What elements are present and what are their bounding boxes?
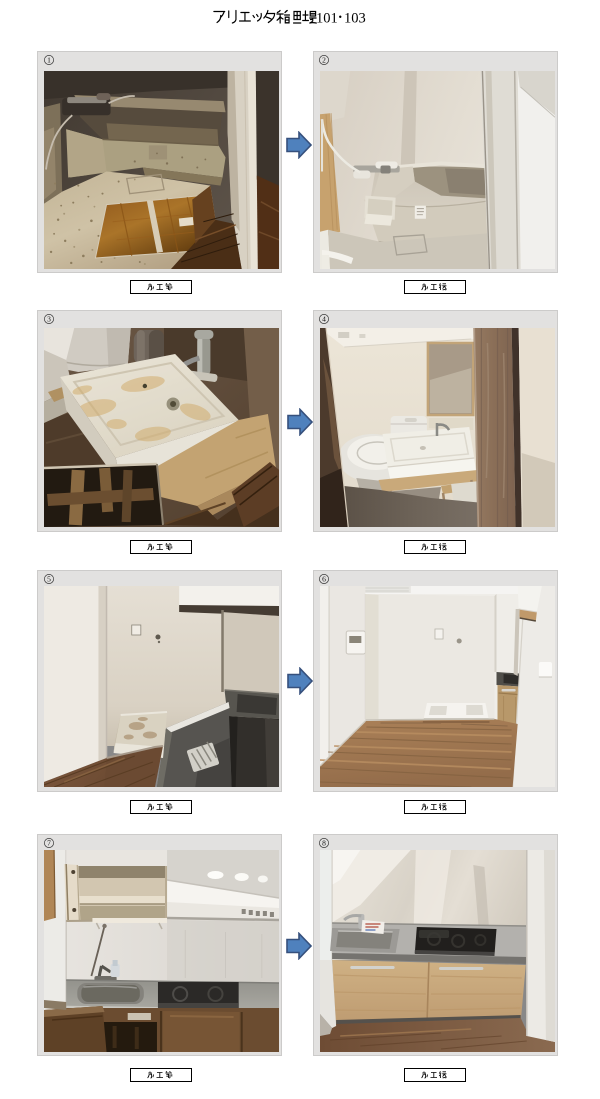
svg-text:7: 7 [47, 839, 51, 848]
svg-text:8: 8 [322, 839, 326, 848]
svg-text:5: 5 [47, 575, 51, 584]
svg-text:•: • [339, 13, 343, 24]
svg-text:6: 6 [322, 575, 326, 584]
svg-text:103: 103 [344, 11, 366, 26]
svg-text:2: 2 [322, 56, 326, 65]
svg-text:4: 4 [322, 315, 326, 324]
svg-text:1: 1 [47, 56, 51, 65]
svg-text:3: 3 [47, 315, 51, 324]
svg-text:101: 101 [316, 11, 338, 26]
